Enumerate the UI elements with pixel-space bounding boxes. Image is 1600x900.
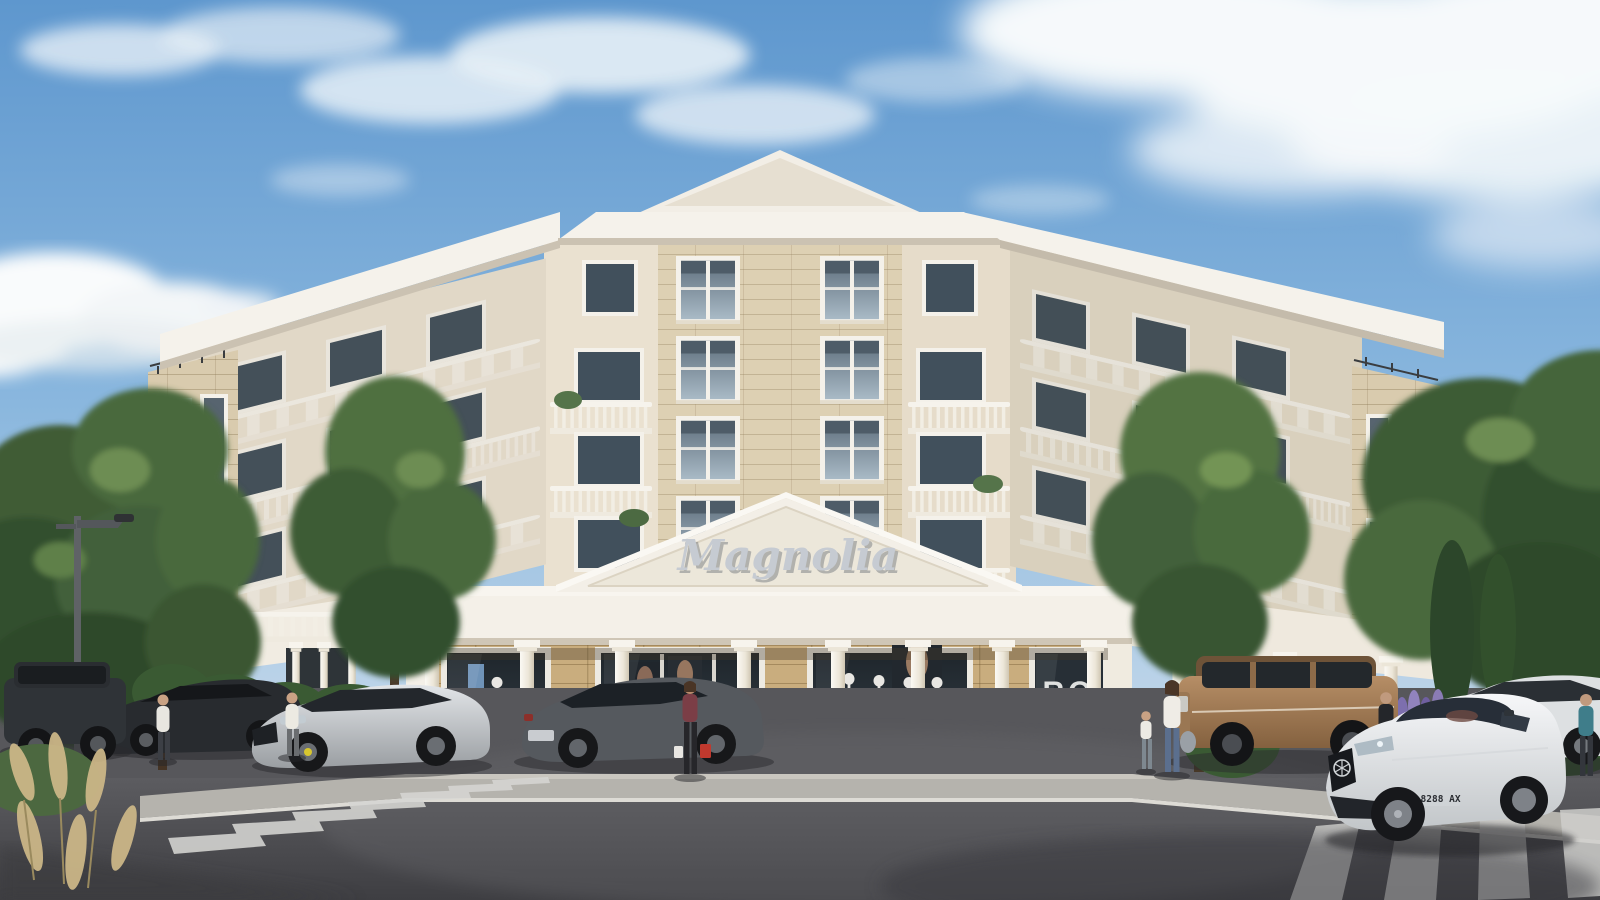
balcony-plant [619,509,649,527]
person-legs [684,722,690,774]
window [918,434,984,486]
person-head [1580,694,1592,706]
wheel-rim [569,739,587,757]
recessed-wing-left [544,240,658,596]
window [918,350,984,402]
person-torso [286,704,299,729]
car-pillar [1310,662,1316,688]
person-head [287,693,298,704]
cornice-center [558,212,1002,240]
tower-window [820,416,884,484]
foliage-highlight [396,452,444,488]
wheel-rim [1512,788,1536,812]
tower-window [676,416,740,484]
car-pillar [1250,662,1256,688]
tower-window [676,336,740,404]
wheel-rim [90,736,106,752]
wheel-rim [1222,734,1242,754]
child-torso [1141,721,1152,739]
architectural-render: RO TA Magnolia Magnolia [0,0,1600,900]
balcony-plant [554,391,582,409]
person-head [158,695,169,706]
side-mirror [1504,710,1514,716]
person-shirt [1579,706,1594,736]
foliage-highlight [1200,452,1252,488]
balcony-plant [973,475,1003,493]
person-legs [165,732,170,760]
window [576,350,642,402]
car-taillight [524,714,533,721]
person-legs [1588,736,1594,776]
person-legs [1580,736,1586,776]
portico-entablature [406,596,1132,644]
window [584,262,636,314]
child-legs [1148,739,1152,769]
wheel-rim [427,737,445,755]
child-legs [1142,739,1146,769]
person-shadow [1136,769,1156,776]
car-rear-plate [528,730,554,741]
person-sweater [1164,696,1181,728]
person-hair [1165,680,1179,696]
person-legs [294,729,299,756]
tower-window [820,336,884,404]
person-hair [684,681,696,692]
wheel-rim [139,733,153,747]
headlight-glow [1377,741,1383,747]
shopping-bag-red [700,744,711,758]
child-head [1141,711,1151,721]
interior-hint [1446,710,1478,722]
sidewalk-lit-strip [380,774,1180,779]
window [924,262,976,314]
person-shadow [1154,772,1190,781]
wheel-hub [1394,810,1402,818]
person-legs [692,722,698,774]
foliage-highlight [1466,418,1534,462]
person-shadow [674,774,706,782]
person-jeans [1174,728,1180,772]
cornice-center-shadow [558,238,1002,245]
person-torso [157,706,170,732]
lamp-head [114,514,134,522]
building-name-sign: Magnolia [676,531,899,580]
person-head [1380,692,1392,704]
window [576,434,642,486]
tower-window [820,256,884,324]
foliage-highlight [90,448,150,492]
brake-caliper-yellow [304,748,312,756]
handbag [1180,731,1196,753]
car-glass [1202,662,1372,688]
person-legs [287,729,292,756]
shopping-bag-white [674,746,683,758]
recessed-wing-right [902,240,1016,598]
lamp-arm-left [56,524,76,529]
render-canvas: RO TA Magnolia Magnolia [0,0,1600,900]
person-legs [158,732,163,760]
person-blouse [683,694,698,722]
car-glass [18,666,106,684]
foliage [332,566,460,678]
person-jeans [1165,728,1171,772]
tower-window [676,256,740,324]
